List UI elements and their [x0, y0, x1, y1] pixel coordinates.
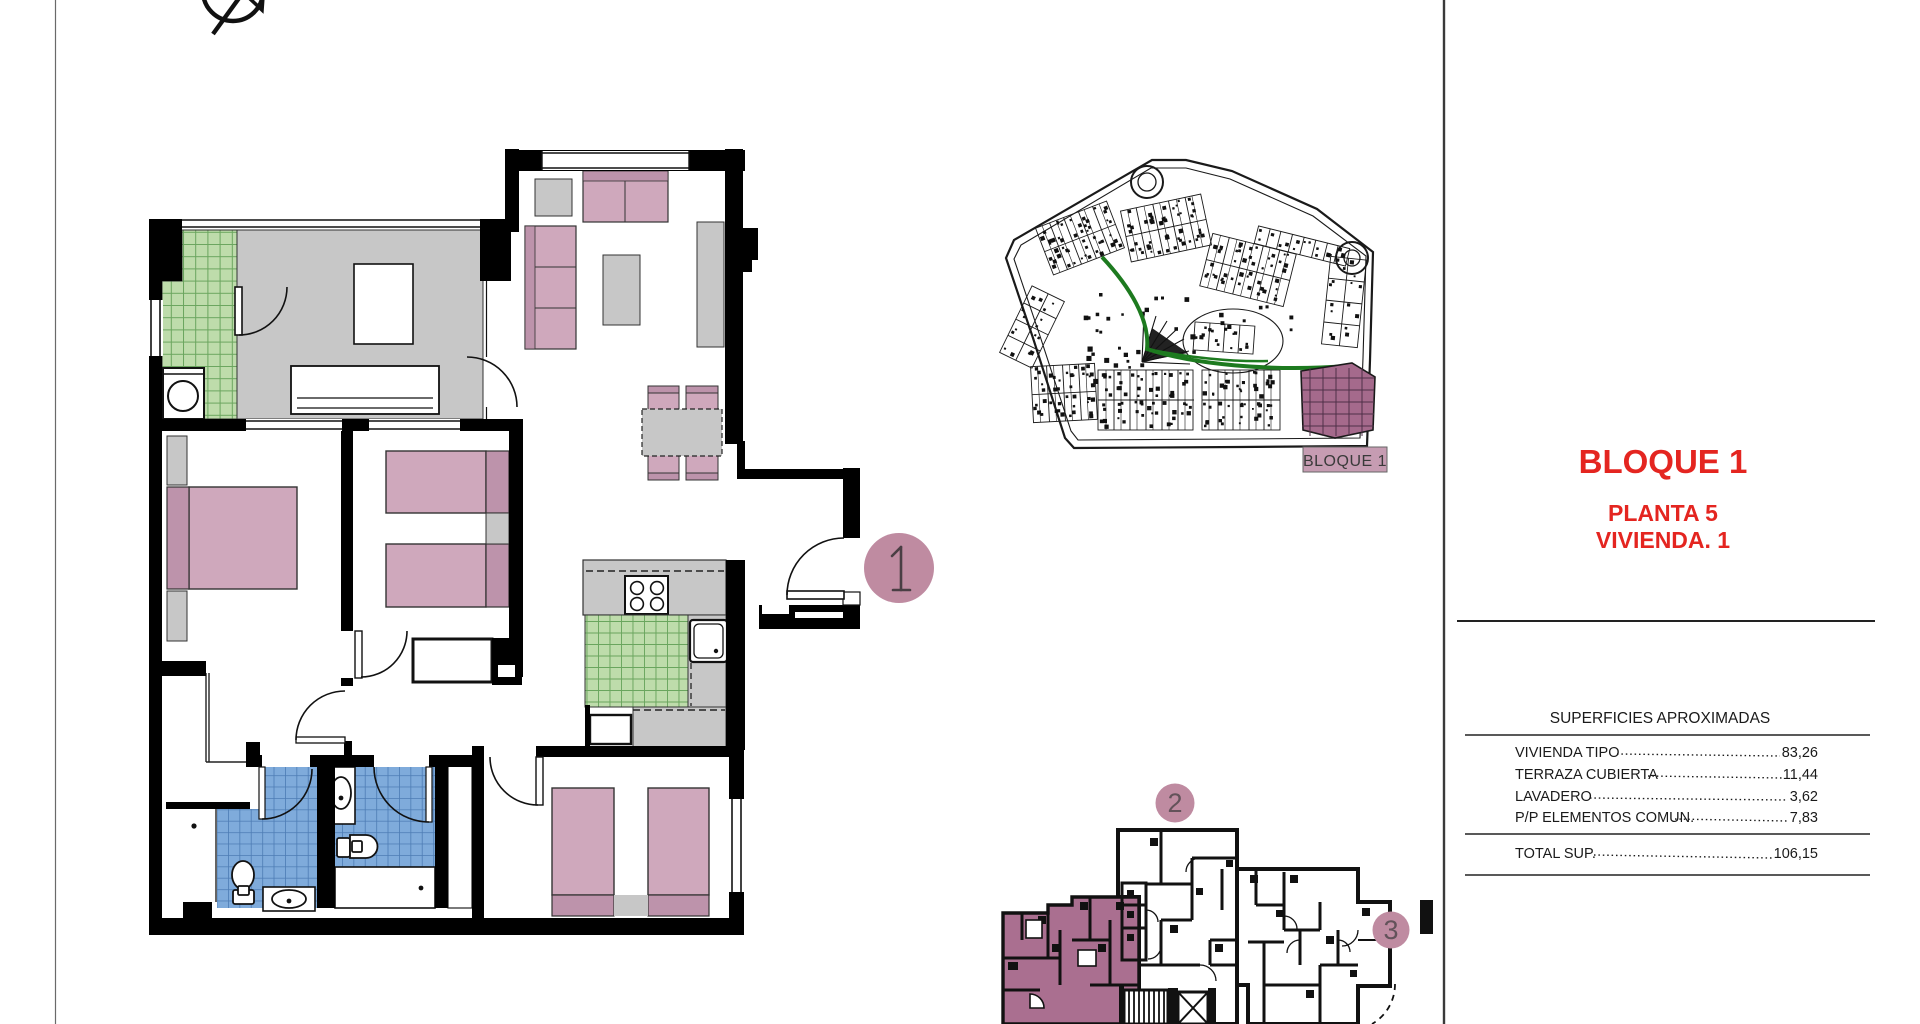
svg-text:83,26: 83,26	[1782, 745, 1818, 761]
svg-text:VIVIENDA. 1: VIVIENDA. 1	[1596, 527, 1730, 553]
svg-text:3,62: 3,62	[1790, 789, 1818, 805]
svg-text:P/P ELEMENTOS COMUN.: P/P ELEMENTOS COMUN.	[1515, 810, 1694, 826]
svg-text:TOTAL SUP.: TOTAL SUP.	[1515, 846, 1596, 862]
svg-text:106,15: 106,15	[1774, 846, 1818, 862]
svg-text:BLOQUE 1: BLOQUE 1	[1303, 453, 1387, 470]
svg-text:BLOQUE 1: BLOQUE 1	[1579, 443, 1748, 480]
svg-text:LAVADERO: LAVADERO	[1515, 789, 1592, 805]
svg-text:7,83: 7,83	[1790, 810, 1818, 826]
svg-text:PLANTA 5: PLANTA 5	[1608, 500, 1718, 526]
svg-text:2: 2	[1167, 788, 1182, 818]
svg-text:SUPERFICIES APROXIMADAS: SUPERFICIES APROXIMADAS	[1550, 710, 1771, 727]
svg-text:TERRAZA CUBIERTA: TERRAZA CUBIERTA	[1515, 767, 1658, 783]
svg-text:3: 3	[1383, 915, 1398, 945]
svg-text:11,44: 11,44	[1783, 767, 1818, 783]
svg-text:VIVIENDA TIPO: VIVIENDA TIPO	[1515, 745, 1620, 761]
